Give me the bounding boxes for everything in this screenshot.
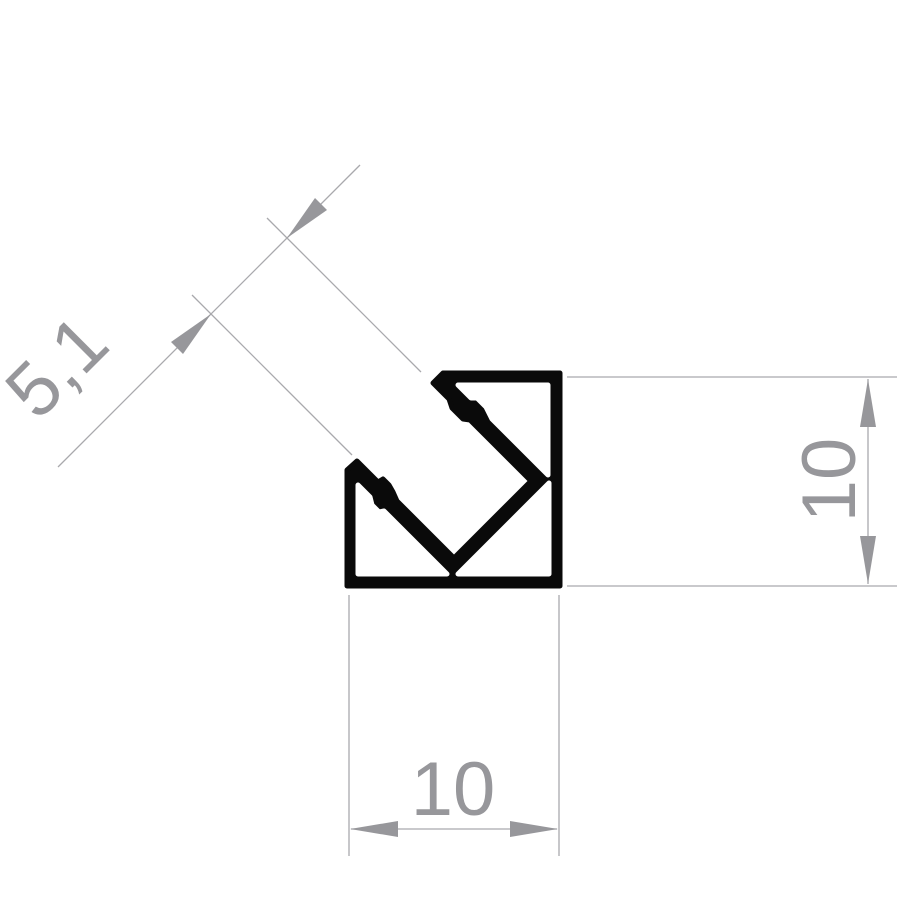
dim-arrow-down [860, 536, 876, 584]
dimension-right-label: 10 [787, 438, 872, 523]
dim-arrow-up [860, 379, 876, 427]
extension-line-lower [192, 295, 352, 455]
drawing-canvas: 5,1 10 10 [0, 0, 900, 900]
dimension-right: 10 [567, 377, 897, 586]
profile-cavity-bottom-right [458, 483, 549, 574]
dim-arrow-left [350, 821, 398, 837]
dimension-bottom: 10 [349, 595, 559, 856]
dimension-bottom-label: 10 [411, 747, 496, 832]
dim-arrow-right [510, 821, 558, 837]
profile-cavity-top-right [458, 385, 548, 475]
technical-drawing: 5,1 10 10 [0, 0, 900, 900]
dimension-diagonal: 5,1 [0, 165, 421, 467]
dimension-diagonal-label: 5,1 [0, 300, 124, 435]
extension-line-upper [267, 218, 421, 372]
dim-arrow-lower [171, 314, 211, 354]
dim-arrow-upper [287, 198, 327, 238]
profile-cavity-bottom-left [358, 485, 447, 574]
profile-cross-section [347, 373, 560, 586]
